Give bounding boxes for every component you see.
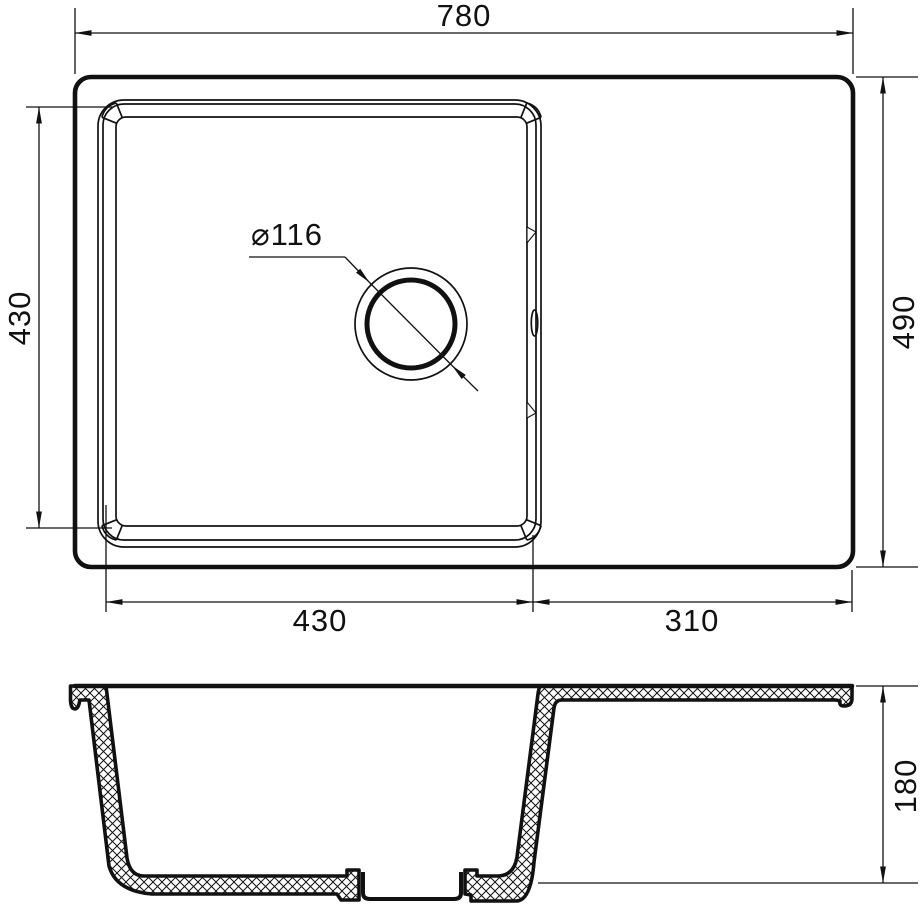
dim-430-bottom-label: 430 — [293, 603, 348, 638]
bowl-rim-mid-line — [103, 104, 536, 540]
sink-outer-outline — [75, 77, 853, 567]
dim-490-label: 490 — [886, 295, 921, 350]
drain-diameter-leader: ⌀116 — [249, 217, 478, 391]
rim-dart-lower — [527, 402, 536, 418]
bowl-rim-outer-line — [98, 100, 541, 547]
dim-430-left-label: 430 — [2, 291, 37, 346]
section-view — [71, 686, 853, 901]
rim-dart-upper — [527, 227, 536, 243]
dimension-430-bottom: 430 — [106, 505, 533, 638]
dimension-430-left: 430 — [2, 107, 112, 528]
sink-drawing-svg: ⌀116 780 490 430 430 310 — [0, 0, 921, 909]
section-right-body — [465, 686, 852, 901]
section-drain-recess — [363, 872, 461, 899]
bowl-corner-fans — [102, 103, 541, 540]
dimension-180: 180 — [538, 686, 921, 883]
dimension-310: 310 — [533, 570, 852, 638]
drain-diameter-label: ⌀116 — [251, 217, 323, 252]
dim-310-label: 310 — [665, 603, 720, 638]
dimension-780: 780 — [75, 0, 853, 74]
technical-drawing-canvas: ⌀116 780 490 430 430 310 — [0, 0, 921, 909]
section-left-body — [71, 686, 360, 900]
bowl-rim-inner-line — [116, 117, 527, 526]
dim-180-label: 180 — [888, 759, 921, 814]
dim-780-label: 780 — [437, 0, 492, 33]
top-view: ⌀116 — [75, 77, 853, 567]
dimension-490: 490 — [856, 77, 921, 567]
